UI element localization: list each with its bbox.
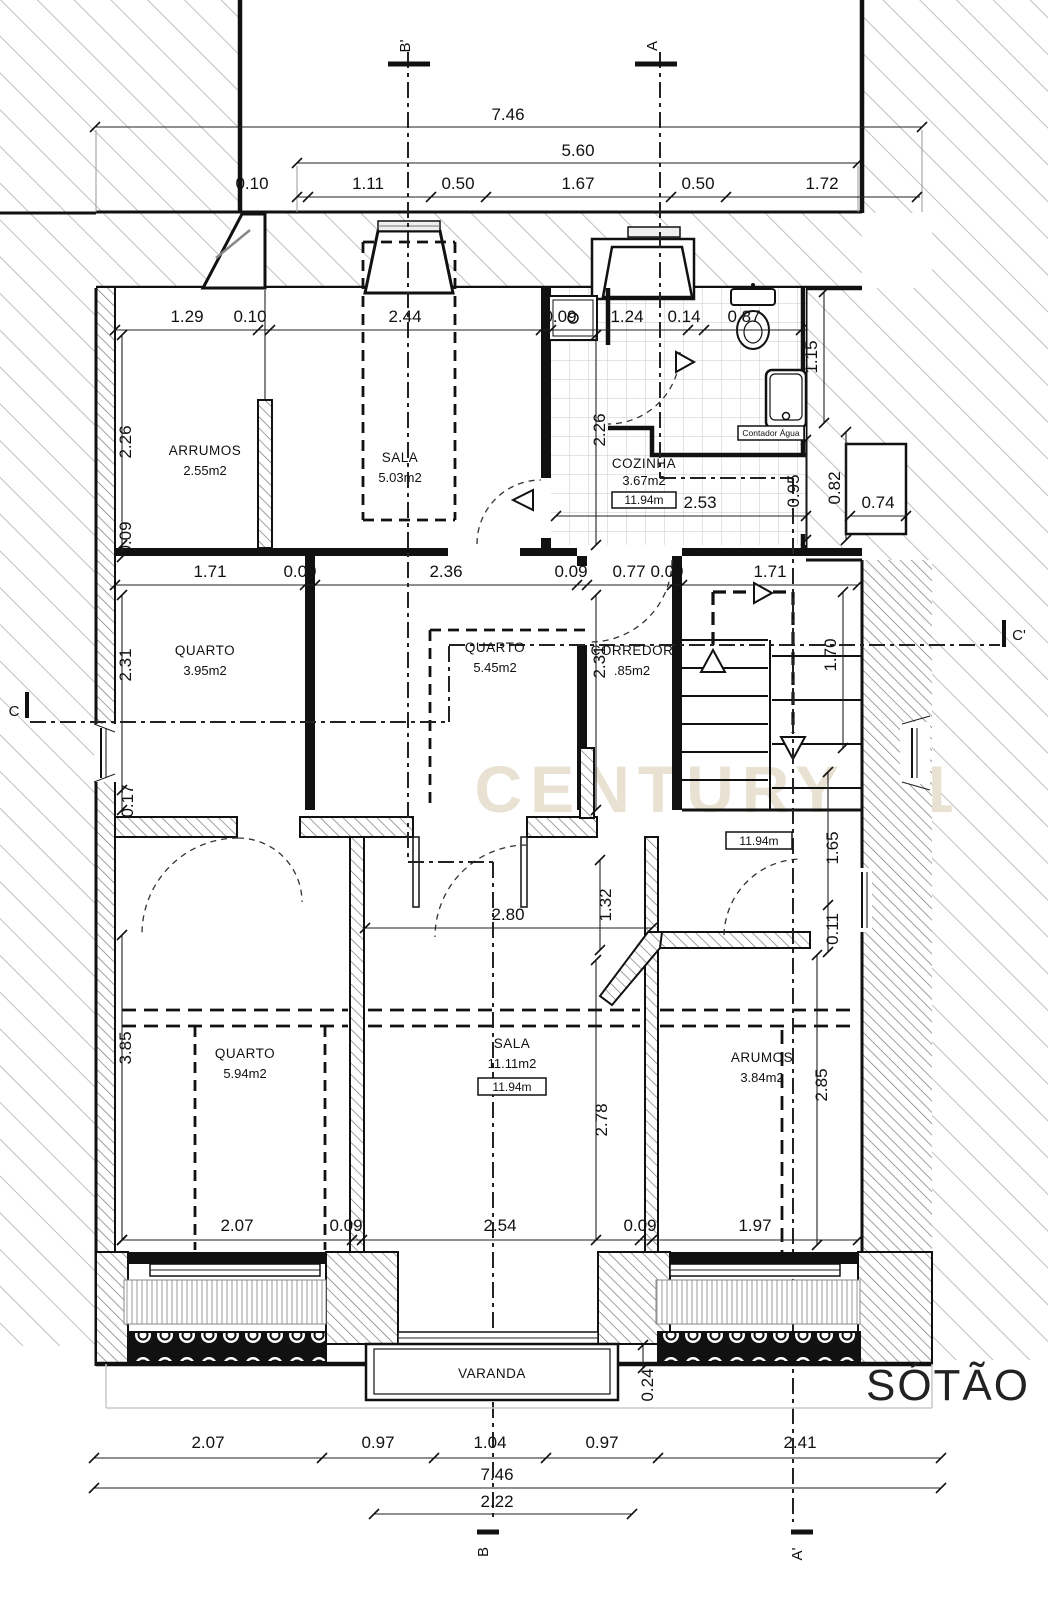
room-quarto-sw-area: 5.94m2 (223, 1066, 266, 1081)
dim: 2.78 (592, 1103, 611, 1136)
wall-corredor-right (672, 556, 682, 810)
room-sala-main-name: SALA (494, 1036, 531, 1051)
room-cozinha-ceiling: 11.94m (624, 493, 663, 507)
room-quarto-mid-area: 5.45m2 (473, 660, 516, 675)
room-quarto-nw-name: QUARTO (175, 643, 235, 658)
dim: 1.15 (802, 340, 821, 373)
dim: 0.09 (543, 307, 576, 326)
room-varanda-label: VARANDA (458, 1366, 526, 1381)
dim: 0.87 (727, 307, 760, 326)
dim-total-width-bottom: 7.46 (480, 1465, 513, 1484)
dim: 1.65 (823, 831, 842, 864)
hall-ceiling: 11.94m (739, 834, 778, 848)
room-sala-main-area: 11.11m2 (488, 1056, 537, 1071)
section-marker-b-bottom: B (475, 1547, 492, 1557)
room-arumos-name: ARUMOS (731, 1050, 793, 1065)
wall-sala-main-left (350, 837, 364, 1255)
dim: 0.77 (612, 562, 645, 581)
floor-title: SÓTÃO (866, 1360, 1030, 1410)
dim: 0.50 (681, 174, 714, 193)
room-arumos-area: 3.84m2 (740, 1070, 783, 1085)
dim: 0.24 (638, 1368, 657, 1401)
dim: 0.14 (667, 307, 700, 326)
dim: 2.26 (590, 413, 609, 446)
dim: 0.09 (623, 1216, 656, 1235)
section-marker-a-bottom: A' (789, 1547, 806, 1560)
wall-sala-main-right (645, 837, 658, 1255)
room-cozinha-area: 3.67m2 (622, 473, 665, 488)
wall-arrumos-sala (258, 400, 272, 548)
dim: 0.09 (283, 562, 316, 581)
room-cozinha-name: COZINHA (612, 456, 676, 471)
dim: 2.54 (483, 1216, 516, 1235)
dim: 0.97 (585, 1433, 618, 1452)
dim: 0.09 (116, 521, 135, 554)
section-marker-b-top: B' (397, 39, 414, 52)
section-marker-a-top: A (644, 41, 661, 51)
dim: 1.24 (610, 307, 643, 326)
skylight-band-right (656, 1280, 860, 1324)
dim: 0.17 (118, 784, 137, 817)
bottom-facade: VARANDA (96, 1252, 932, 1408)
dim: 1.72 (805, 174, 838, 193)
dim: 2.31 (116, 648, 135, 681)
toilet-tank (731, 289, 775, 305)
room-quarto-mid-name: QUARTO (465, 640, 525, 655)
dim: 2.53 (683, 493, 716, 512)
dim: 0.95 (784, 474, 803, 507)
section-marker-c-right: C' (1012, 627, 1026, 644)
room-quarto-sw-name: QUARTO (215, 1046, 275, 1061)
dim-total-width-top: 7.46 (491, 105, 524, 124)
dim: 0.50 (441, 174, 474, 193)
dim: 1.11 (352, 174, 384, 193)
dim: 2.44 (388, 307, 421, 326)
dim: 2.85 (812, 1068, 831, 1101)
dim: 0.10 (233, 307, 266, 326)
room-sala-main-ceiling: 11.94m (492, 1080, 531, 1094)
room-corredor-area: .85m2 (614, 663, 650, 678)
dim: 0.82 (825, 471, 844, 504)
room-sala-top-area: 5.03m2 (378, 470, 421, 485)
room-quarto-nw-area: 3.95m2 (183, 663, 226, 678)
dim-inner-width-top: 5.60 (561, 141, 594, 160)
dim: 0.10 (235, 174, 268, 193)
floor-plan: CENTURY 21 (0, 0, 1048, 1600)
dim: 2.07 (191, 1433, 224, 1452)
baluster-row-right (658, 1332, 860, 1362)
dim-balcony-door-width: 2.22 (480, 1492, 513, 1511)
dim: 0.74 (861, 493, 894, 512)
room-sala-top-name: SALA (382, 450, 419, 465)
dim: 2.41 (783, 1433, 816, 1452)
dim: 1.97 (738, 1216, 771, 1235)
dim: 0.09 (650, 562, 683, 581)
dim: 1.04 (473, 1433, 506, 1452)
dim: 0.97 (361, 1433, 394, 1452)
dim: 1.70 (821, 638, 840, 671)
water-meter-label: Contador Água (742, 428, 799, 438)
baluster-row-left (128, 1332, 326, 1362)
dim: 2.07 (220, 1216, 253, 1235)
dim: 2.26 (116, 425, 135, 458)
room-arrumos-top-name: ARRUMOS (169, 443, 242, 458)
dim: 1.32 (596, 888, 615, 921)
dim: 0.09 (554, 562, 587, 581)
dim: 2.36 (429, 562, 462, 581)
dim: 1.67 (561, 174, 594, 193)
dim: 1.71 (753, 562, 786, 581)
wall-quarto-nw (305, 556, 315, 810)
skylight-band-left (124, 1280, 326, 1324)
dim: 1.29 (170, 307, 203, 326)
dim: 0.09 (329, 1216, 362, 1235)
alcove (846, 444, 906, 534)
room-arrumos-top-area: 2.55m2 (183, 463, 226, 478)
section-marker-c-left: C (9, 703, 20, 720)
dim: 3.85 (116, 1031, 135, 1064)
dim: 2.31 (590, 645, 609, 678)
dim: 0.11 (823, 913, 842, 945)
dim: 2.80 (491, 905, 524, 924)
dim: 1.71 (193, 562, 226, 581)
